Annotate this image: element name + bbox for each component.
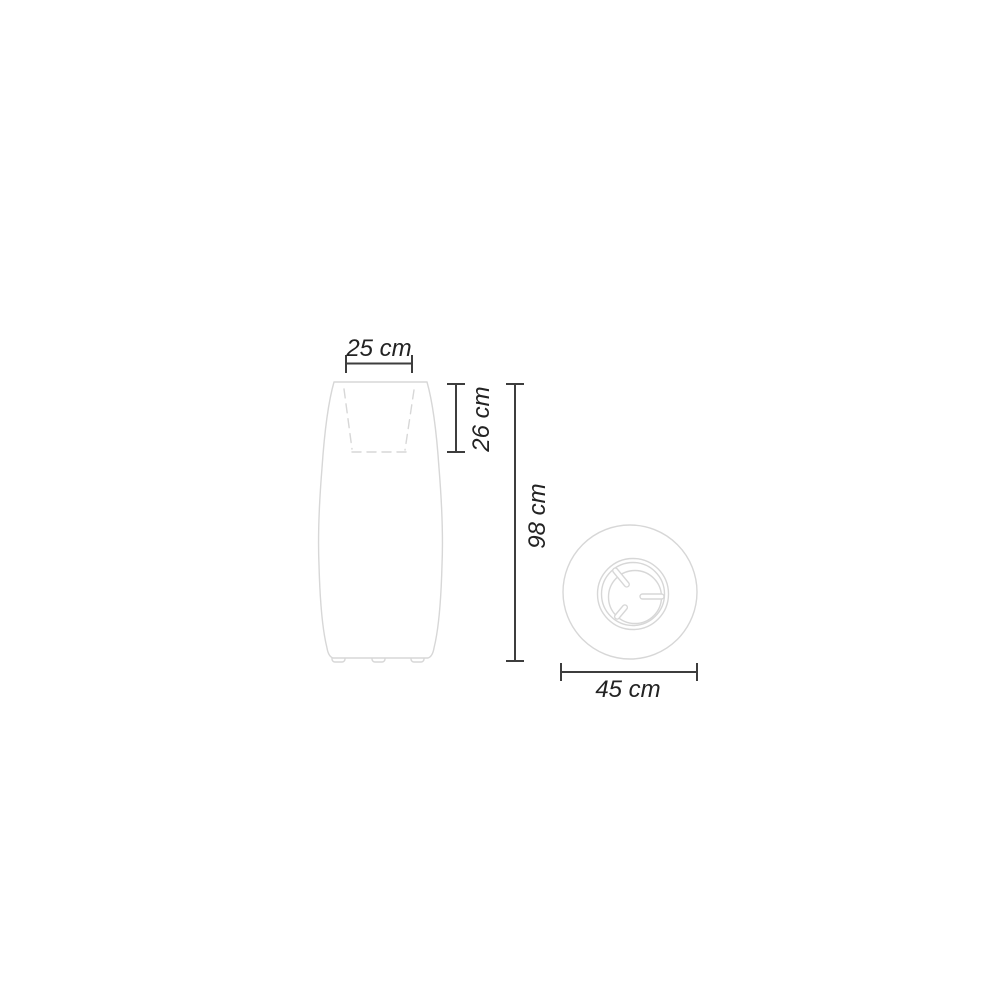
label-diameter: 45 cm bbox=[595, 676, 660, 703]
dimension-opening-depth bbox=[447, 384, 465, 452]
label-opening-depth: 26 cm bbox=[468, 386, 495, 452]
planter-dimension-diagram: 25 cm 26 cm 98 cm 45 cm bbox=[0, 0, 1000, 1000]
vase-front-outline bbox=[319, 382, 443, 658]
base-slot-right bbox=[640, 594, 664, 599]
top-view-outer-rim-circle bbox=[563, 525, 697, 659]
dimension-height bbox=[506, 384, 524, 661]
base-slot-lower-left bbox=[614, 604, 629, 620]
label-top-width: 25 cm bbox=[345, 335, 411, 362]
front-view bbox=[319, 382, 443, 662]
diagram-canvas: 25 cm 26 cm 98 cm 45 cm bbox=[0, 0, 1000, 1000]
label-height: 98 cm bbox=[524, 483, 551, 548]
top-view bbox=[563, 525, 697, 659]
base-slot-upper-left bbox=[612, 567, 630, 588]
